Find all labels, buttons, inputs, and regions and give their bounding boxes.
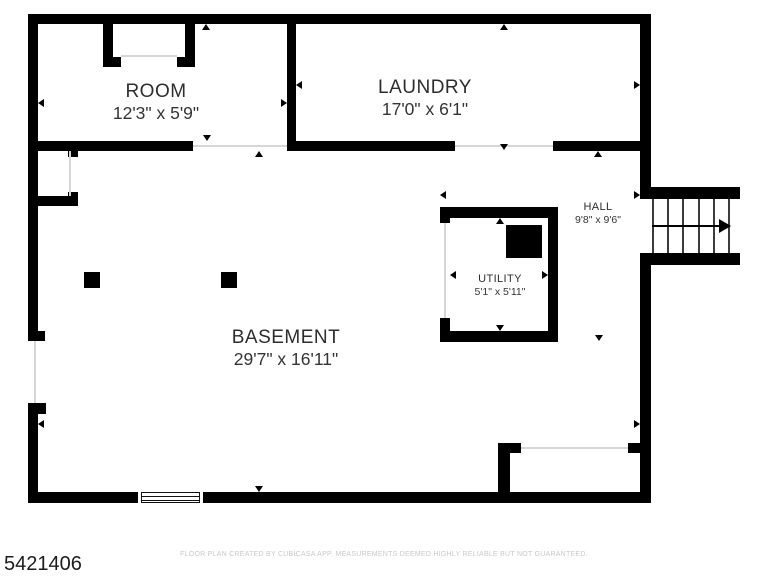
- nook-foot-left: [113, 57, 121, 67]
- stair-top-wall: [640, 187, 740, 199]
- window-pane-lines: [142, 496, 199, 501]
- support-post: [84, 272, 100, 288]
- hall-name: HALL: [558, 201, 638, 214]
- stair-direction-line: [652, 225, 722, 227]
- laundry-dimensions: 17'0" x 6'1": [345, 98, 505, 120]
- basement-name: BASEMENT: [206, 327, 366, 348]
- listing-id: 5421406: [4, 553, 82, 576]
- utility-top-wall: [440, 207, 558, 218]
- measure-arrow-icon: [450, 271, 456, 279]
- utility-dimensions: 5'1" x 5'11": [459, 286, 541, 299]
- left-opening-jamb-bottom: [38, 403, 46, 414]
- utility-left-wall-top: [440, 207, 450, 223]
- room-dimensions: 12'3" x 5'9": [76, 102, 236, 124]
- left-wall-lower: [28, 403, 38, 503]
- nook-opening-line: [121, 55, 177, 57]
- measure-arrow-icon: [440, 191, 446, 199]
- stair-bottom-wall: [640, 253, 740, 265]
- disclaimer-text: FLOOR PLAN CREATED BY CUBICASA APP. MEAS…: [0, 551, 768, 558]
- measure-arrow-icon: [38, 420, 44, 428]
- bottom-wall-left: [28, 492, 138, 503]
- measure-arrow-icon: [500, 24, 508, 30]
- utility-name: UTILITY: [459, 273, 541, 286]
- utility-bottom-wall: [440, 331, 558, 342]
- basement-floor-plan: ROOM 12'3" x 5'9" LAUNDRY 17'0" x 6'1" H…: [0, 0, 768, 576]
- laundry-name: LAUNDRY: [345, 77, 505, 98]
- utility-door-line: [444, 223, 446, 318]
- measure-arrow-icon: [542, 271, 548, 279]
- hall-dimensions: 9'8" x 9'6": [558, 214, 638, 227]
- alcove-foot-right: [628, 443, 640, 453]
- measure-arrow-icon: [496, 218, 504, 224]
- nook-stub-left: [103, 24, 113, 67]
- left-closet-line: [69, 151, 71, 196]
- measure-arrow-icon: [595, 335, 603, 341]
- stair-direction-arrow-icon: [719, 219, 731, 233]
- measure-arrow-icon: [634, 420, 640, 428]
- hall-label: HALL 9'8" x 9'6": [558, 201, 638, 227]
- room-bottom-wall: [28, 141, 193, 151]
- laundry-bottom-wall-right: [553, 141, 640, 151]
- utility-label: UTILITY 5'1" x 5'11": [459, 273, 541, 299]
- right-wall-lower: [640, 253, 651, 503]
- furnace-box: [506, 225, 542, 258]
- basement-label: BASEMENT 29'7" x 16'11": [206, 327, 366, 370]
- laundry-bottom-wall-left: [287, 141, 455, 151]
- measure-arrow-icon: [281, 99, 287, 107]
- left-opening-jamb-top: [38, 331, 45, 341]
- measure-arrow-icon: [296, 81, 302, 89]
- alcove-foot-left: [510, 443, 521, 453]
- room-label: ROOM 12'3" x 5'9": [76, 81, 236, 124]
- measure-arrow-icon: [38, 99, 44, 107]
- measure-arrow-icon: [634, 81, 640, 89]
- measure-arrow-icon: [255, 486, 263, 492]
- left-wall-upper: [28, 14, 38, 341]
- room-door-line: [193, 145, 287, 147]
- window-symbol: [141, 492, 200, 503]
- top-wall: [28, 14, 651, 24]
- measure-arrow-icon: [634, 191, 640, 199]
- utility-left-wall-bottom: [440, 318, 450, 342]
- left-opening-line: [34, 341, 36, 403]
- measure-arrow-icon: [500, 144, 508, 150]
- room-name: ROOM: [76, 81, 236, 102]
- measure-arrow-icon: [594, 151, 602, 157]
- alcove-opening-line: [521, 447, 628, 449]
- right-wall-upper: [640, 14, 651, 199]
- measure-arrow-icon: [202, 24, 210, 30]
- nook-foot-right: [177, 57, 185, 67]
- alcove-stub-wall: [498, 443, 510, 492]
- laundry-label: LAUNDRY 17'0" x 6'1": [345, 77, 505, 120]
- measure-arrow-icon: [203, 135, 211, 141]
- measure-arrow-icon: [255, 151, 263, 157]
- nook-stub-right: [185, 24, 195, 67]
- support-post: [221, 272, 237, 288]
- room-laundry-divider-wall: [287, 14, 296, 143]
- utility-right-wall: [548, 207, 558, 342]
- measure-arrow-icon: [496, 325, 504, 331]
- basement-dimensions: 29'7" x 16'11": [206, 348, 366, 370]
- bottom-wall-right: [203, 492, 651, 503]
